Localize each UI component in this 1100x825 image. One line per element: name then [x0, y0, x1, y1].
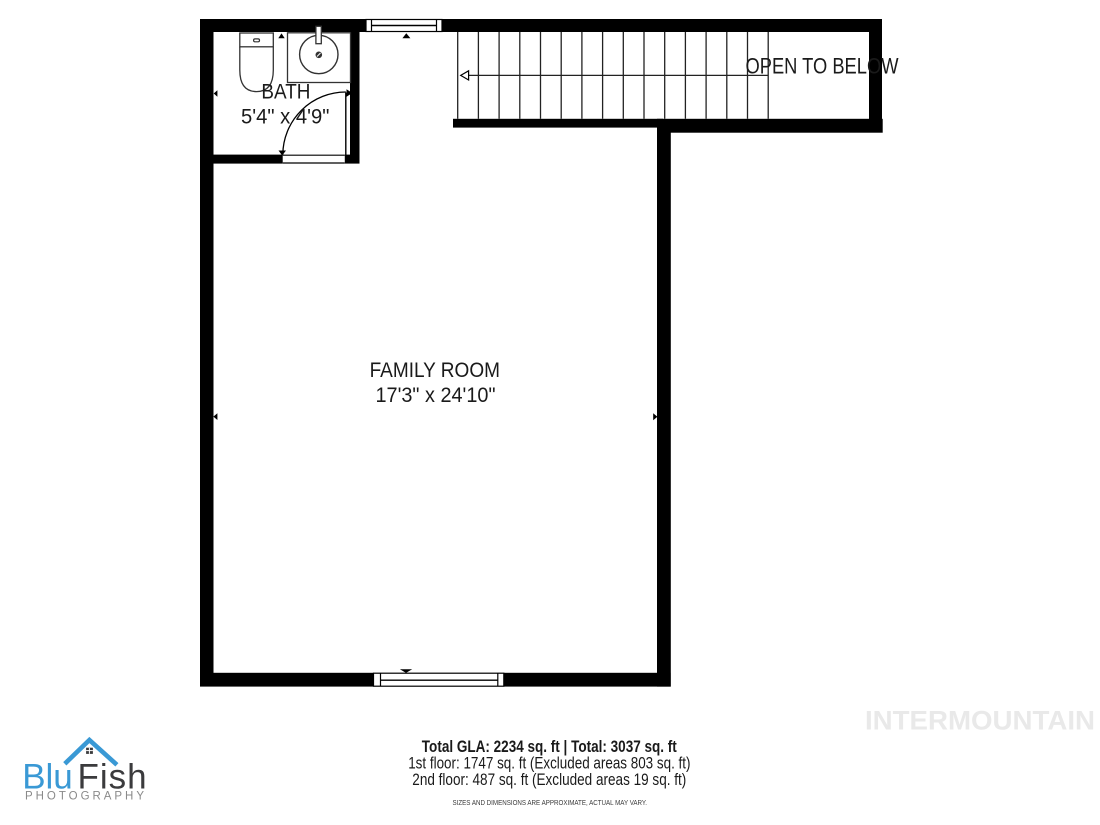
svg-text:17'3" x 24'10": 17'3" x 24'10" [376, 383, 496, 407]
svg-text:2nd floor: 487 sq. ft (Exclude: 2nd floor: 487 sq. ft (Excluded areas 19… [412, 770, 686, 789]
svg-text:INTERMOUNTAIN: INTERMOUNTAIN [865, 706, 1095, 736]
svg-text:FAMILY ROOM: FAMILY ROOM [370, 358, 500, 382]
svg-text:SIZES AND DIMENSIONS ARE APPRO: SIZES AND DIMENSIONS ARE APPROXIMATE, AC… [453, 800, 648, 807]
svg-text:OPEN TO BELOW: OPEN TO BELOW [746, 54, 899, 79]
svg-text:5'4" x 4'9": 5'4" x 4'9" [241, 105, 329, 128]
svg-text:PHOTOGRAPHY: PHOTOGRAPHY [25, 790, 144, 802]
svg-text:BATH: BATH [261, 81, 310, 104]
